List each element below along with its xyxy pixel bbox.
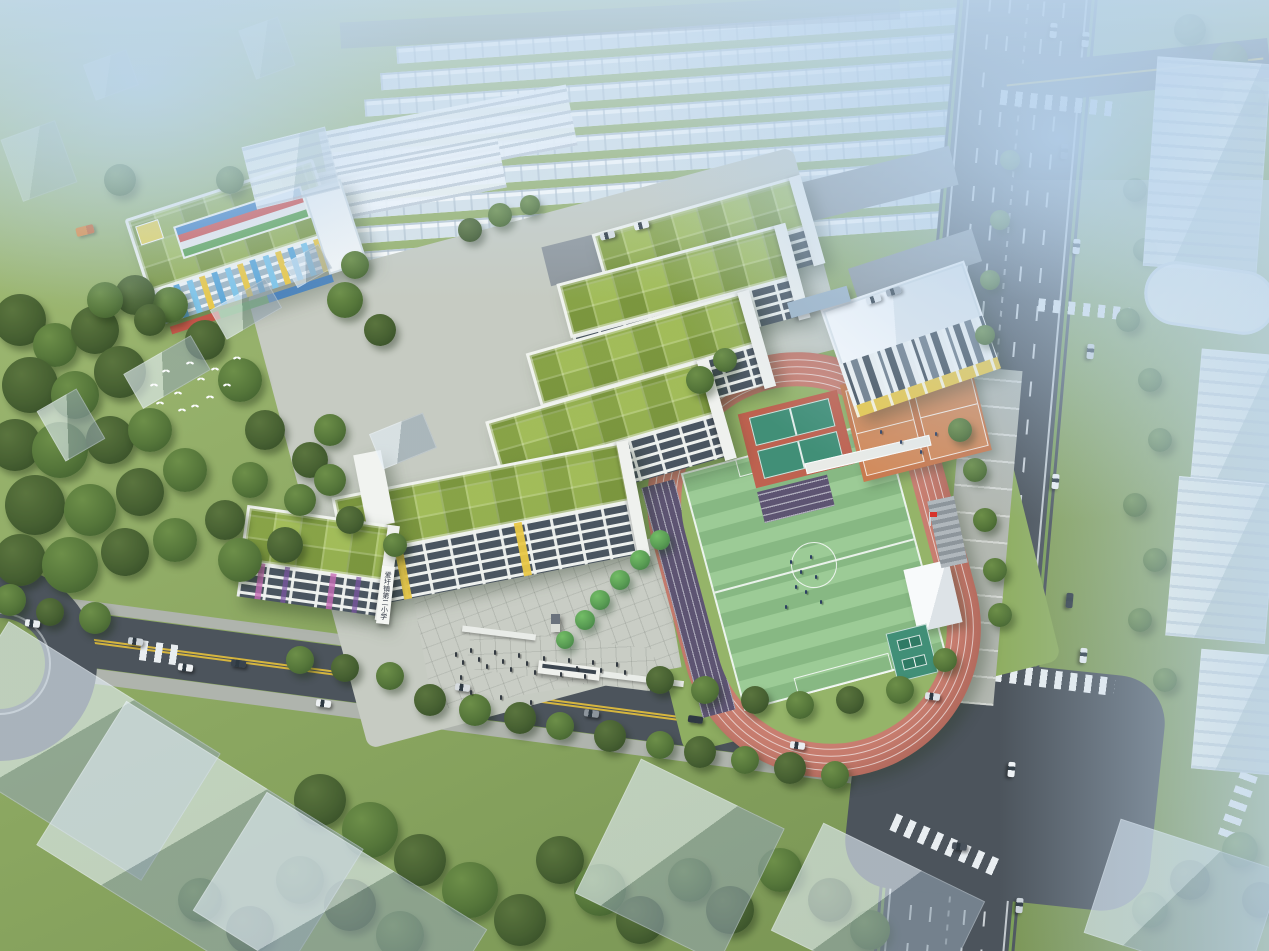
person (592, 660, 594, 665)
person (460, 675, 462, 680)
person (470, 648, 472, 653)
campus-aerial-render: 爱圩镇第二小学 (0, 0, 1269, 951)
basketball-player (880, 430, 882, 434)
person (526, 661, 528, 666)
person (530, 700, 532, 705)
person (600, 668, 602, 673)
person (486, 664, 488, 669)
people-layer (0, 0, 1269, 951)
person (462, 660, 464, 665)
football-player (810, 555, 812, 559)
person (584, 674, 586, 679)
football-player (785, 605, 787, 609)
basketball-player (935, 432, 937, 436)
basketball-player (900, 440, 902, 444)
person (624, 670, 626, 675)
football-player (800, 570, 802, 574)
person (616, 662, 618, 667)
person (510, 667, 512, 672)
person (560, 672, 562, 677)
person (534, 670, 536, 675)
person (502, 659, 504, 664)
football-player (815, 575, 817, 579)
person (470, 690, 472, 695)
person (568, 658, 570, 663)
person (576, 666, 578, 671)
football-player (805, 590, 807, 594)
football-player (795, 585, 797, 589)
person (543, 656, 545, 661)
basketball-player (920, 450, 922, 454)
football-player (820, 600, 822, 604)
person (518, 653, 520, 658)
football-player (790, 560, 792, 564)
person (494, 650, 496, 655)
person (500, 695, 502, 700)
person (478, 657, 480, 662)
person (455, 652, 457, 657)
